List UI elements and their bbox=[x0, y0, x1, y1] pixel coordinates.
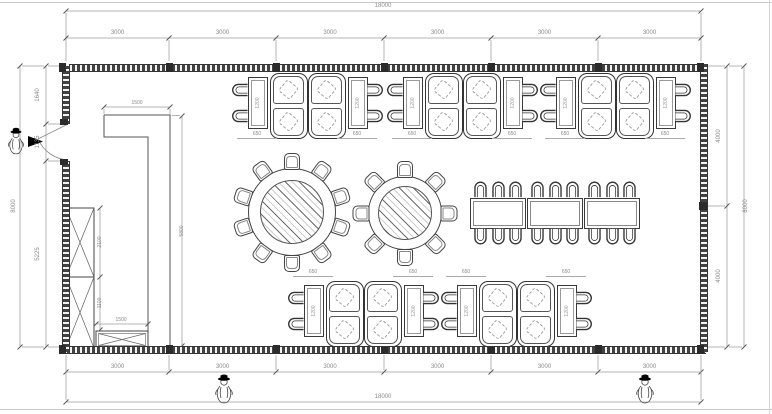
long-table-chair-icon bbox=[507, 228, 524, 246]
long-table bbox=[584, 198, 640, 229]
long-table-chair-icon bbox=[621, 180, 638, 198]
table-width-dim: 650 bbox=[546, 269, 586, 277]
column-marker bbox=[697, 345, 704, 354]
booth-end-table: 1200 bbox=[503, 77, 523, 129]
booth-sofa-unit bbox=[326, 281, 364, 347]
round-back-chair-icon bbox=[287, 316, 305, 333]
round-back-chair-icon bbox=[287, 290, 305, 307]
sofa-bench bbox=[367, 316, 398, 344]
booth-end-table: 1200 bbox=[557, 285, 577, 337]
dimension-label: 3000 bbox=[418, 29, 458, 37]
booth-end-table: 1200 bbox=[404, 285, 424, 337]
long-table-chair-icon bbox=[507, 180, 524, 198]
long-table-chair-icon bbox=[621, 228, 638, 246]
table-length-label: 1200 bbox=[562, 83, 570, 123]
column-marker bbox=[273, 345, 280, 354]
long-table-chair-icon bbox=[547, 180, 564, 198]
person-figure-bottom-1 bbox=[212, 372, 236, 408]
long-table-chair-icon bbox=[472, 180, 489, 198]
round-back-chair-icon bbox=[440, 290, 458, 307]
booth-sofa-unit bbox=[517, 281, 555, 347]
sofa-bench bbox=[428, 76, 459, 104]
dimension-label: 5800 bbox=[178, 211, 186, 251]
round-back-chair-icon bbox=[231, 108, 249, 125]
table-width-dim: 650 bbox=[545, 131, 585, 139]
column-marker bbox=[595, 345, 602, 354]
seat-cushion-icon bbox=[586, 79, 607, 100]
round-back-chair-icon bbox=[440, 316, 458, 333]
seat-cushion-icon bbox=[316, 79, 337, 100]
round-back-chair-icon bbox=[367, 82, 385, 99]
seat-cushion-icon bbox=[433, 79, 454, 100]
booth-end-table: 1200 bbox=[348, 77, 368, 129]
dimension-label: 3000 bbox=[310, 363, 350, 371]
seat-cushion-icon bbox=[334, 319, 355, 340]
dimension-label: 4000 bbox=[715, 116, 723, 156]
sofa-bench bbox=[273, 76, 304, 104]
round-table-chair bbox=[284, 153, 300, 170]
seat-cushion-icon bbox=[624, 111, 645, 132]
booth-sofa-unit bbox=[425, 73, 463, 139]
long-table bbox=[527, 198, 583, 229]
dimension-label: 3000 bbox=[525, 363, 565, 371]
seat-cushion-icon bbox=[316, 111, 337, 132]
long-table bbox=[470, 198, 526, 229]
booth-cluster-top-1: 12001200650650 bbox=[231, 73, 384, 137]
booth-end-table: 1200 bbox=[403, 77, 423, 129]
column-marker bbox=[381, 63, 388, 72]
sofa-bench bbox=[273, 108, 304, 136]
sofa-bench bbox=[428, 108, 459, 136]
seat-cushion-icon bbox=[433, 111, 454, 132]
person-with-hat-icon bbox=[212, 372, 236, 408]
table-width-dim: 650 bbox=[446, 269, 486, 277]
round-back-chair-icon bbox=[423, 290, 441, 307]
round-table-chair bbox=[353, 205, 370, 221]
booth-cluster-bottom-1: 12001200650650 bbox=[287, 281, 440, 345]
round-back-chair-icon bbox=[522, 108, 540, 125]
round-back-chair-icon bbox=[423, 316, 441, 333]
booth-cluster-top-3: 12001200650650 bbox=[539, 73, 692, 137]
seat-cushion-icon bbox=[372, 319, 393, 340]
long-table-chair-icon bbox=[564, 180, 581, 198]
column-marker bbox=[59, 345, 66, 354]
dimension-label: 3000 bbox=[630, 363, 670, 371]
seat-cushion-icon bbox=[334, 287, 355, 308]
table-width-dim: 650 bbox=[392, 131, 432, 139]
round-back-chair-icon bbox=[576, 290, 594, 307]
seat-cushion-icon bbox=[278, 79, 299, 100]
table-length-label: 1200 bbox=[410, 291, 418, 331]
long-table-chair-icon bbox=[586, 180, 603, 198]
dimension-label: 3000 bbox=[98, 363, 138, 371]
seat-cushion-icon bbox=[471, 111, 492, 132]
long-table-chair-icon bbox=[529, 180, 546, 198]
booth-sofa-unit bbox=[463, 73, 501, 139]
table-width-dim: 650 bbox=[645, 131, 685, 139]
column-marker bbox=[697, 63, 704, 72]
door-jamb-marker bbox=[60, 159, 68, 165]
dimension-label: 3000 bbox=[203, 363, 243, 371]
sofa-bench bbox=[581, 76, 612, 104]
sofa-bench bbox=[581, 108, 612, 136]
sofa-bench bbox=[329, 316, 360, 344]
round-back-chair-icon bbox=[539, 82, 557, 99]
table-length-label: 1200 bbox=[310, 291, 318, 331]
dimension-label: 5225 bbox=[34, 234, 42, 274]
floor-plan-canvas: 1200120065065012001200650650120012006506… bbox=[0, 0, 772, 414]
round-back-chair-icon bbox=[386, 108, 404, 125]
dimension-label: 8000 bbox=[742, 186, 750, 226]
dimension-label: 3000 bbox=[630, 29, 670, 37]
round-back-chair-icon bbox=[675, 108, 693, 125]
seat-cushion-icon bbox=[471, 79, 492, 100]
person-figure-bottom-2 bbox=[633, 372, 657, 408]
round-back-chair-icon bbox=[539, 108, 557, 125]
dimension-label: 2100 bbox=[96, 222, 104, 262]
sofa-bench bbox=[466, 76, 497, 104]
seat-cushion-icon bbox=[586, 111, 607, 132]
dimension-label: 8000 bbox=[10, 186, 18, 226]
booth-sofa-unit bbox=[578, 73, 616, 139]
person-with-hat-icon bbox=[633, 372, 657, 408]
booth-sofa-unit bbox=[308, 73, 346, 139]
table-width-dim: 650 bbox=[337, 131, 377, 139]
long-table-chair-icon bbox=[604, 180, 621, 198]
seat-cushion-icon bbox=[525, 287, 546, 308]
booth-sofa-unit bbox=[479, 281, 517, 347]
sofa-bench bbox=[367, 284, 398, 312]
round-table-chair bbox=[397, 161, 413, 178]
table-length-label: 1200 bbox=[662, 83, 670, 123]
round-back-chair-icon bbox=[367, 108, 385, 125]
booth-sofa-unit bbox=[270, 73, 308, 139]
table-length-label: 1200 bbox=[354, 83, 362, 123]
round-back-chair-icon bbox=[231, 82, 249, 99]
column-marker bbox=[273, 63, 280, 72]
table-width-dim: 650 bbox=[393, 269, 433, 277]
round-table-chair bbox=[441, 205, 458, 221]
round-table-chair bbox=[397, 249, 413, 266]
dimension-label: 1500 bbox=[117, 99, 157, 107]
long-table-chair-icon bbox=[604, 228, 621, 246]
sofa-bench bbox=[482, 284, 513, 312]
table-length-label: 1200 bbox=[463, 291, 471, 331]
table-length-label: 1200 bbox=[563, 291, 571, 331]
table-width-dim: 650 bbox=[293, 269, 333, 277]
booth-end-table: 1200 bbox=[556, 77, 576, 129]
sofa-bench bbox=[482, 316, 513, 344]
column-marker bbox=[166, 63, 173, 72]
long-table-chair-icon bbox=[564, 228, 581, 246]
wall-left-upper bbox=[62, 64, 70, 124]
booth-cluster-top-2: 12001200650650 bbox=[386, 73, 539, 137]
person-figure-entry bbox=[5, 126, 27, 158]
dimension-label: 18000 bbox=[353, 2, 413, 10]
dimension-label: 4000 bbox=[715, 256, 723, 296]
dimension-label: 3000 bbox=[418, 363, 458, 371]
sofa-bench bbox=[619, 76, 650, 104]
sofa-bench bbox=[520, 284, 551, 312]
door-jamb-marker bbox=[60, 119, 68, 125]
column-marker bbox=[595, 63, 602, 72]
wall-left-lower bbox=[62, 161, 70, 352]
dimension-label: 1500 bbox=[101, 316, 141, 324]
round-table-chair bbox=[284, 255, 300, 272]
dimension-label: 3000 bbox=[98, 29, 138, 37]
dimension-label: 1135 bbox=[34, 122, 42, 162]
seat-cushion-icon bbox=[487, 287, 508, 308]
sofa-bench bbox=[329, 284, 360, 312]
round-table-small-top bbox=[378, 186, 432, 240]
booth-end-table: 1200 bbox=[304, 285, 324, 337]
dimension-label: 3000 bbox=[203, 29, 243, 37]
column-marker bbox=[488, 63, 495, 72]
dimension-label: 18000 bbox=[353, 393, 413, 401]
column-marker bbox=[59, 63, 66, 72]
seat-cushion-icon bbox=[525, 319, 546, 340]
round-back-chair-icon bbox=[576, 316, 594, 333]
person-with-hat-icon bbox=[5, 126, 27, 158]
round-back-chair-icon bbox=[386, 82, 404, 99]
long-table-chair-icon bbox=[586, 228, 603, 246]
round-back-chair-icon bbox=[522, 82, 540, 99]
long-table-chair-icon bbox=[490, 228, 507, 246]
column-marker bbox=[166, 345, 173, 354]
long-table-chair-icon bbox=[529, 228, 546, 246]
dimension-label: 1640 bbox=[34, 75, 42, 115]
table-width-dim: 650 bbox=[492, 131, 532, 139]
booth-cluster-bottom-2: 12001200650650 bbox=[440, 281, 593, 345]
booth-end-table: 1200 bbox=[656, 77, 676, 129]
seat-cushion-icon bbox=[487, 319, 508, 340]
seat-cushion-icon bbox=[278, 111, 299, 132]
table-width-dim: 650 bbox=[237, 131, 277, 139]
dimension-label: 3000 bbox=[525, 29, 565, 37]
round-table-large-top bbox=[260, 180, 324, 244]
sofa-bench bbox=[311, 76, 342, 104]
booth-sofa-unit bbox=[616, 73, 654, 139]
table-length-label: 1200 bbox=[509, 83, 517, 123]
booth-end-table: 1200 bbox=[457, 285, 477, 337]
column-marker bbox=[699, 202, 707, 210]
table-length-label: 1200 bbox=[409, 83, 417, 123]
dimension-label: 3000 bbox=[310, 29, 350, 37]
long-table-chair-icon bbox=[472, 228, 489, 246]
round-back-chair-icon bbox=[675, 82, 693, 99]
seat-cushion-icon bbox=[624, 79, 645, 100]
sofa-bench bbox=[520, 316, 551, 344]
table-length-label: 1200 bbox=[254, 83, 262, 123]
seat-cushion-icon bbox=[372, 287, 393, 308]
booth-end-table: 1200 bbox=[248, 77, 268, 129]
long-table-chair-icon bbox=[490, 180, 507, 198]
booth-sofa-unit bbox=[364, 281, 402, 347]
long-table-chair-icon bbox=[547, 228, 564, 246]
